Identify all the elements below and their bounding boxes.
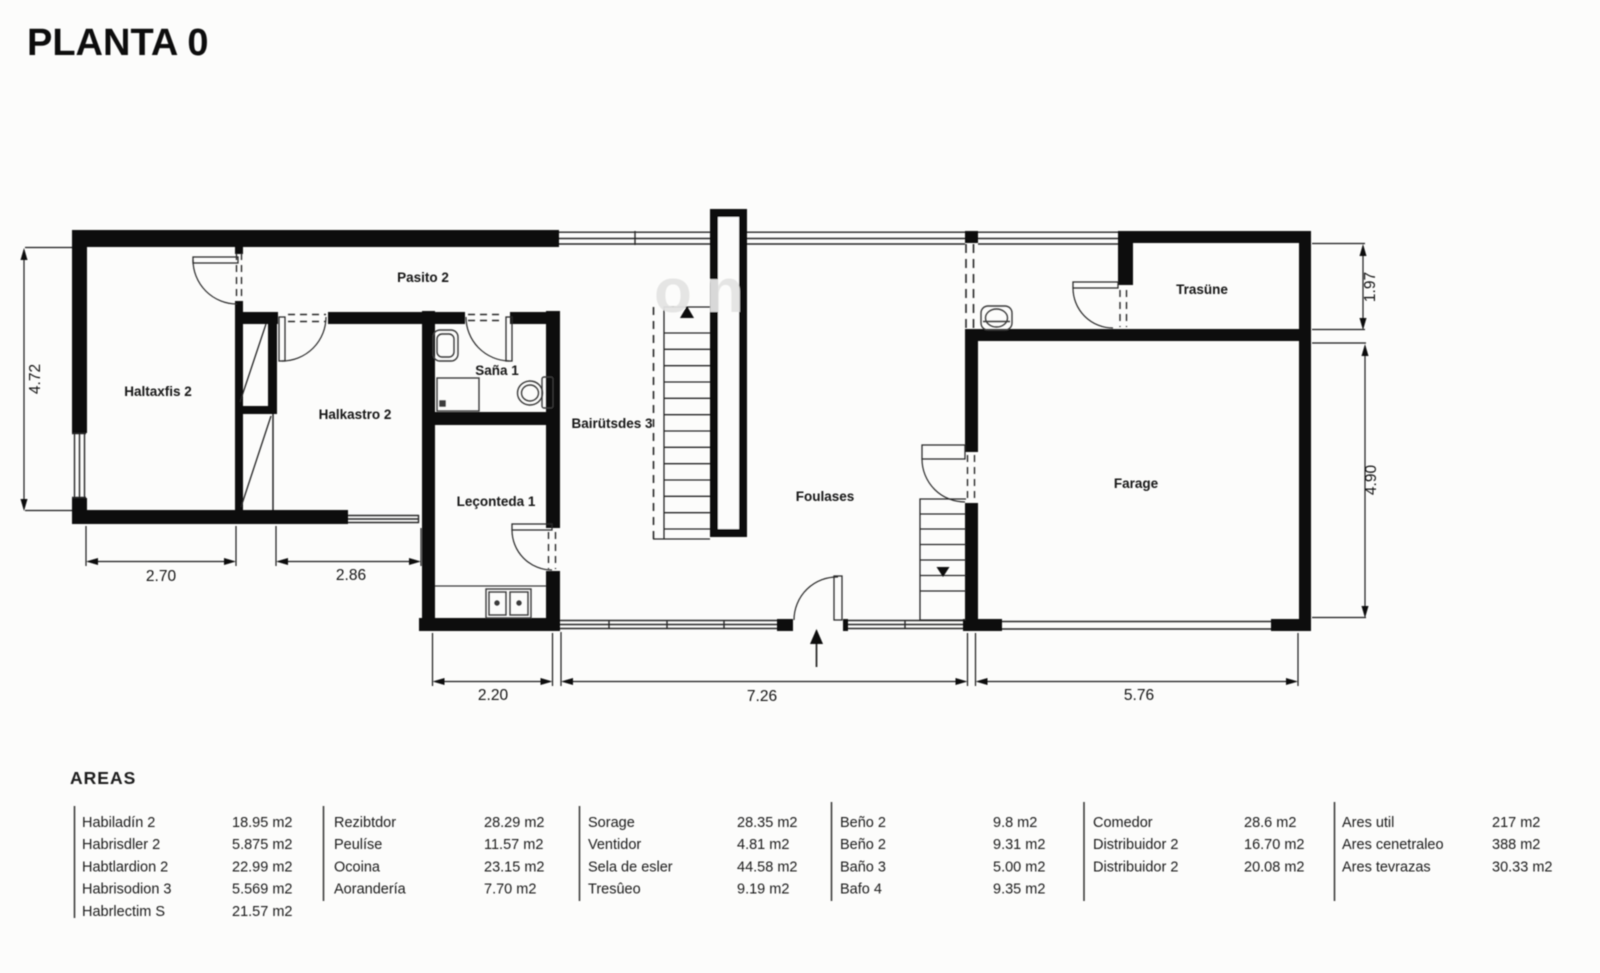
svg-text:Aorandería: Aorandería	[334, 882, 407, 898]
svg-text:Saña 1: Saña 1	[475, 363, 519, 378]
svg-text:Peulíse: Peulíse	[334, 837, 382, 853]
svg-text:1.97: 1.97	[1362, 272, 1379, 302]
svg-text:Sorage: Sorage	[588, 815, 635, 831]
svg-text:9.31 m2: 9.31 m2	[993, 837, 1045, 853]
svg-text:5.875 m2: 5.875 m2	[232, 837, 292, 853]
svg-text:Haltaxfis 2: Haltaxfis 2	[124, 384, 192, 399]
svg-text:Ares util: Ares util	[1342, 815, 1394, 831]
svg-text:Baño 3: Baño 3	[840, 859, 886, 875]
svg-text:Habtlardion 2: Habtlardion 2	[82, 859, 168, 875]
svg-text:30.33 m2: 30.33 m2	[1492, 859, 1552, 875]
svg-text:44.58 m2: 44.58 m2	[737, 859, 797, 875]
svg-text:2.20: 2.20	[478, 687, 509, 704]
svg-text:2.86: 2.86	[336, 567, 366, 584]
svg-text:Pasito 2: Pasito 2	[397, 270, 449, 285]
svg-text:Habrisodion 3: Habrisodion 3	[82, 882, 171, 898]
svg-text:2.70: 2.70	[146, 568, 177, 585]
svg-text:Ares tevrazas: Ares tevrazas	[1342, 859, 1431, 875]
svg-text:AREAS: AREAS	[70, 768, 136, 788]
svg-text:Ares cenetraleo: Ares cenetraleo	[1342, 837, 1444, 853]
svg-text:28.35 m2: 28.35 m2	[737, 815, 797, 831]
svg-text:16.70 m2: 16.70 m2	[1244, 837, 1304, 853]
svg-text:Habrisdler 2: Habrisdler 2	[82, 837, 160, 853]
svg-text:Bafo 4: Bafo 4	[840, 882, 882, 898]
svg-text:5.569 m2: 5.569 m2	[232, 882, 292, 898]
svg-text:9.8 m2: 9.8 m2	[993, 815, 1037, 831]
svg-text:5.00 m2: 5.00 m2	[993, 859, 1045, 875]
svg-text:Beño 2: Beño 2	[840, 815, 886, 831]
svg-text:7.26: 7.26	[747, 688, 777, 705]
svg-text:9.35 m2: 9.35 m2	[993, 882, 1045, 898]
svg-text:Distribuidor 2: Distribuidor 2	[1093, 859, 1178, 875]
svg-text:Rezibtdor: Rezibtdor	[334, 815, 396, 831]
svg-text:11.57 m2: 11.57 m2	[484, 837, 543, 853]
svg-text:4.90: 4.90	[1363, 465, 1380, 496]
svg-text:22.99 m2: 22.99 m2	[232, 859, 292, 875]
svg-text:388 m2: 388 m2	[1492, 837, 1540, 853]
svg-text:28.29 m2: 28.29 m2	[484, 815, 544, 831]
svg-text:Bairütsdes 3: Bairütsdes 3	[571, 416, 653, 431]
svg-text:Trasüne: Trasüne	[1176, 282, 1228, 297]
svg-text:Habiladín 2: Habiladín 2	[82, 815, 155, 831]
svg-text:on: on	[654, 257, 758, 326]
svg-text:18.95 m2: 18.95 m2	[232, 815, 292, 831]
svg-text:Farage: Farage	[1114, 476, 1159, 491]
svg-text:21.57 m2: 21.57 m2	[232, 904, 292, 920]
svg-text:5.76: 5.76	[1124, 687, 1154, 704]
svg-text:PLANTA 0: PLANTA 0	[27, 22, 209, 64]
svg-text:Comedor: Comedor	[1093, 815, 1153, 831]
svg-text:23.15 m2: 23.15 m2	[484, 859, 544, 875]
svg-text:Foulases: Foulases	[796, 489, 855, 504]
svg-text:28.6 m2: 28.6 m2	[1244, 815, 1296, 831]
svg-text:Sela de esler: Sela de esler	[588, 859, 673, 875]
svg-text:7.70 m2: 7.70 m2	[484, 882, 536, 898]
svg-text:217 m2: 217 m2	[1492, 815, 1540, 831]
svg-text:4.72: 4.72	[27, 364, 44, 394]
svg-text:Leçonteda 1: Leçonteda 1	[457, 494, 536, 509]
svg-text:Halkastro 2: Halkastro 2	[319, 407, 392, 422]
svg-text:Distribuidor 2: Distribuidor 2	[1093, 837, 1178, 853]
svg-text:Ventidor: Ventidor	[588, 837, 641, 853]
svg-text:Habrlectim S: Habrlectim S	[82, 904, 165, 920]
svg-text:20.08 m2: 20.08 m2	[1244, 859, 1304, 875]
svg-text:Tresûeo: Tresûeo	[588, 882, 641, 898]
svg-text:9.19 m2: 9.19 m2	[737, 882, 789, 898]
svg-text:Beño 2: Beño 2	[840, 837, 886, 853]
svg-text:4.81 m2: 4.81 m2	[737, 837, 789, 853]
svg-text:Ocoina: Ocoina	[334, 859, 381, 875]
